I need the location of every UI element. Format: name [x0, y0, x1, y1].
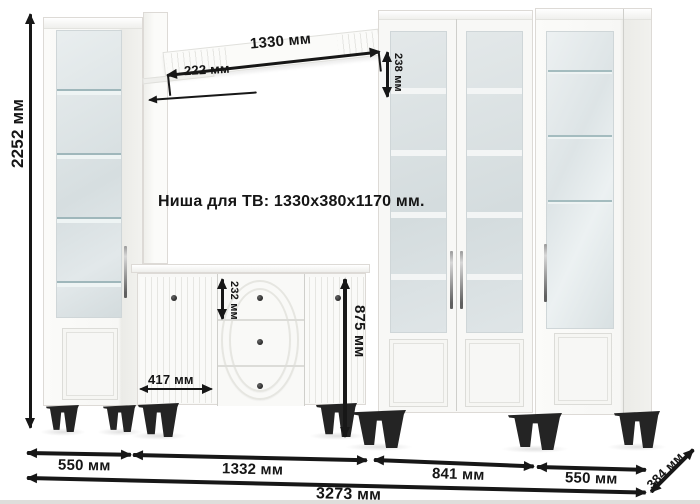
lower-door-panel [465, 339, 524, 407]
bookcase-right-door [457, 19, 532, 409]
dim-line-stand-door [140, 388, 212, 390]
door-edge [304, 274, 305, 406]
door-edge [217, 274, 218, 406]
dim-label-right-cabinet-width: 550 мм [565, 469, 618, 487]
side-panel-edge [623, 9, 624, 416]
dim-label-shelf-face: 238 мм [392, 53, 404, 99]
glass-shelf [548, 135, 612, 137]
leg-shadow [309, 432, 365, 440]
drawer-separator [218, 365, 304, 367]
door-handle [124, 246, 127, 298]
leg-shadow [501, 445, 569, 453]
dim-line-total-height [29, 14, 32, 428]
leg-shadow [40, 428, 86, 436]
glass-shelf [548, 70, 612, 72]
dim-label-stand-height: 875 мм [351, 305, 368, 377]
glass-door [56, 30, 122, 318]
glass-door [546, 31, 614, 329]
tv-stand-top [131, 264, 370, 273]
door-gap [456, 19, 457, 411]
dim-label-stand-door: 417 мм [148, 372, 194, 387]
door-handle [450, 251, 453, 309]
right-door-knob [335, 295, 341, 301]
drawer-knob [257, 339, 263, 345]
left-display-cabinet [43, 17, 143, 406]
dim-label-shelf-inset: 222 мм [184, 61, 230, 78]
left-door-knob [171, 295, 177, 301]
dim-line-stand-height [343, 279, 347, 437]
cabinet-top-rail [44, 18, 142, 29]
door-handle [460, 251, 463, 309]
dim-label-drawer-height: 232 мм [228, 281, 240, 323]
glass-shelf [548, 200, 612, 202]
lower-door-panel [62, 328, 118, 400]
drawer-knob [257, 295, 263, 301]
dim-line-shelf-face [386, 52, 389, 97]
right-display-cabinet [535, 8, 652, 415]
leg-shadow [345, 443, 413, 451]
leg-shadow [131, 432, 187, 440]
image-bottom-edge [0, 500, 700, 504]
tv-niche-note: Ниша для ТВ: 1330x380x1170 мм. [158, 193, 392, 211]
glass-door [466, 31, 523, 333]
dim-label-bookcase-width: 841 мм [432, 465, 485, 484]
dim-label-left-cabinet-width: 550 мм [58, 457, 111, 475]
lower-door-panel [389, 339, 448, 407]
dim-label-tv-section-width: 1332 мм [222, 460, 284, 478]
dim-line-drawer-height [221, 279, 224, 319]
furniture-dimension-diagram: 2252 мм 1330 мм 222 мм 238 мм Ниша для Т… [0, 0, 700, 504]
tv-unit-side-column [143, 12, 168, 264]
dim-label-total-height: 2252 мм [8, 90, 28, 168]
drawer-knob [257, 383, 263, 389]
door-handle [544, 244, 547, 302]
leg-shadow [607, 443, 667, 451]
cabinet-top-rail [536, 9, 651, 20]
lower-door-panel [554, 333, 612, 405]
